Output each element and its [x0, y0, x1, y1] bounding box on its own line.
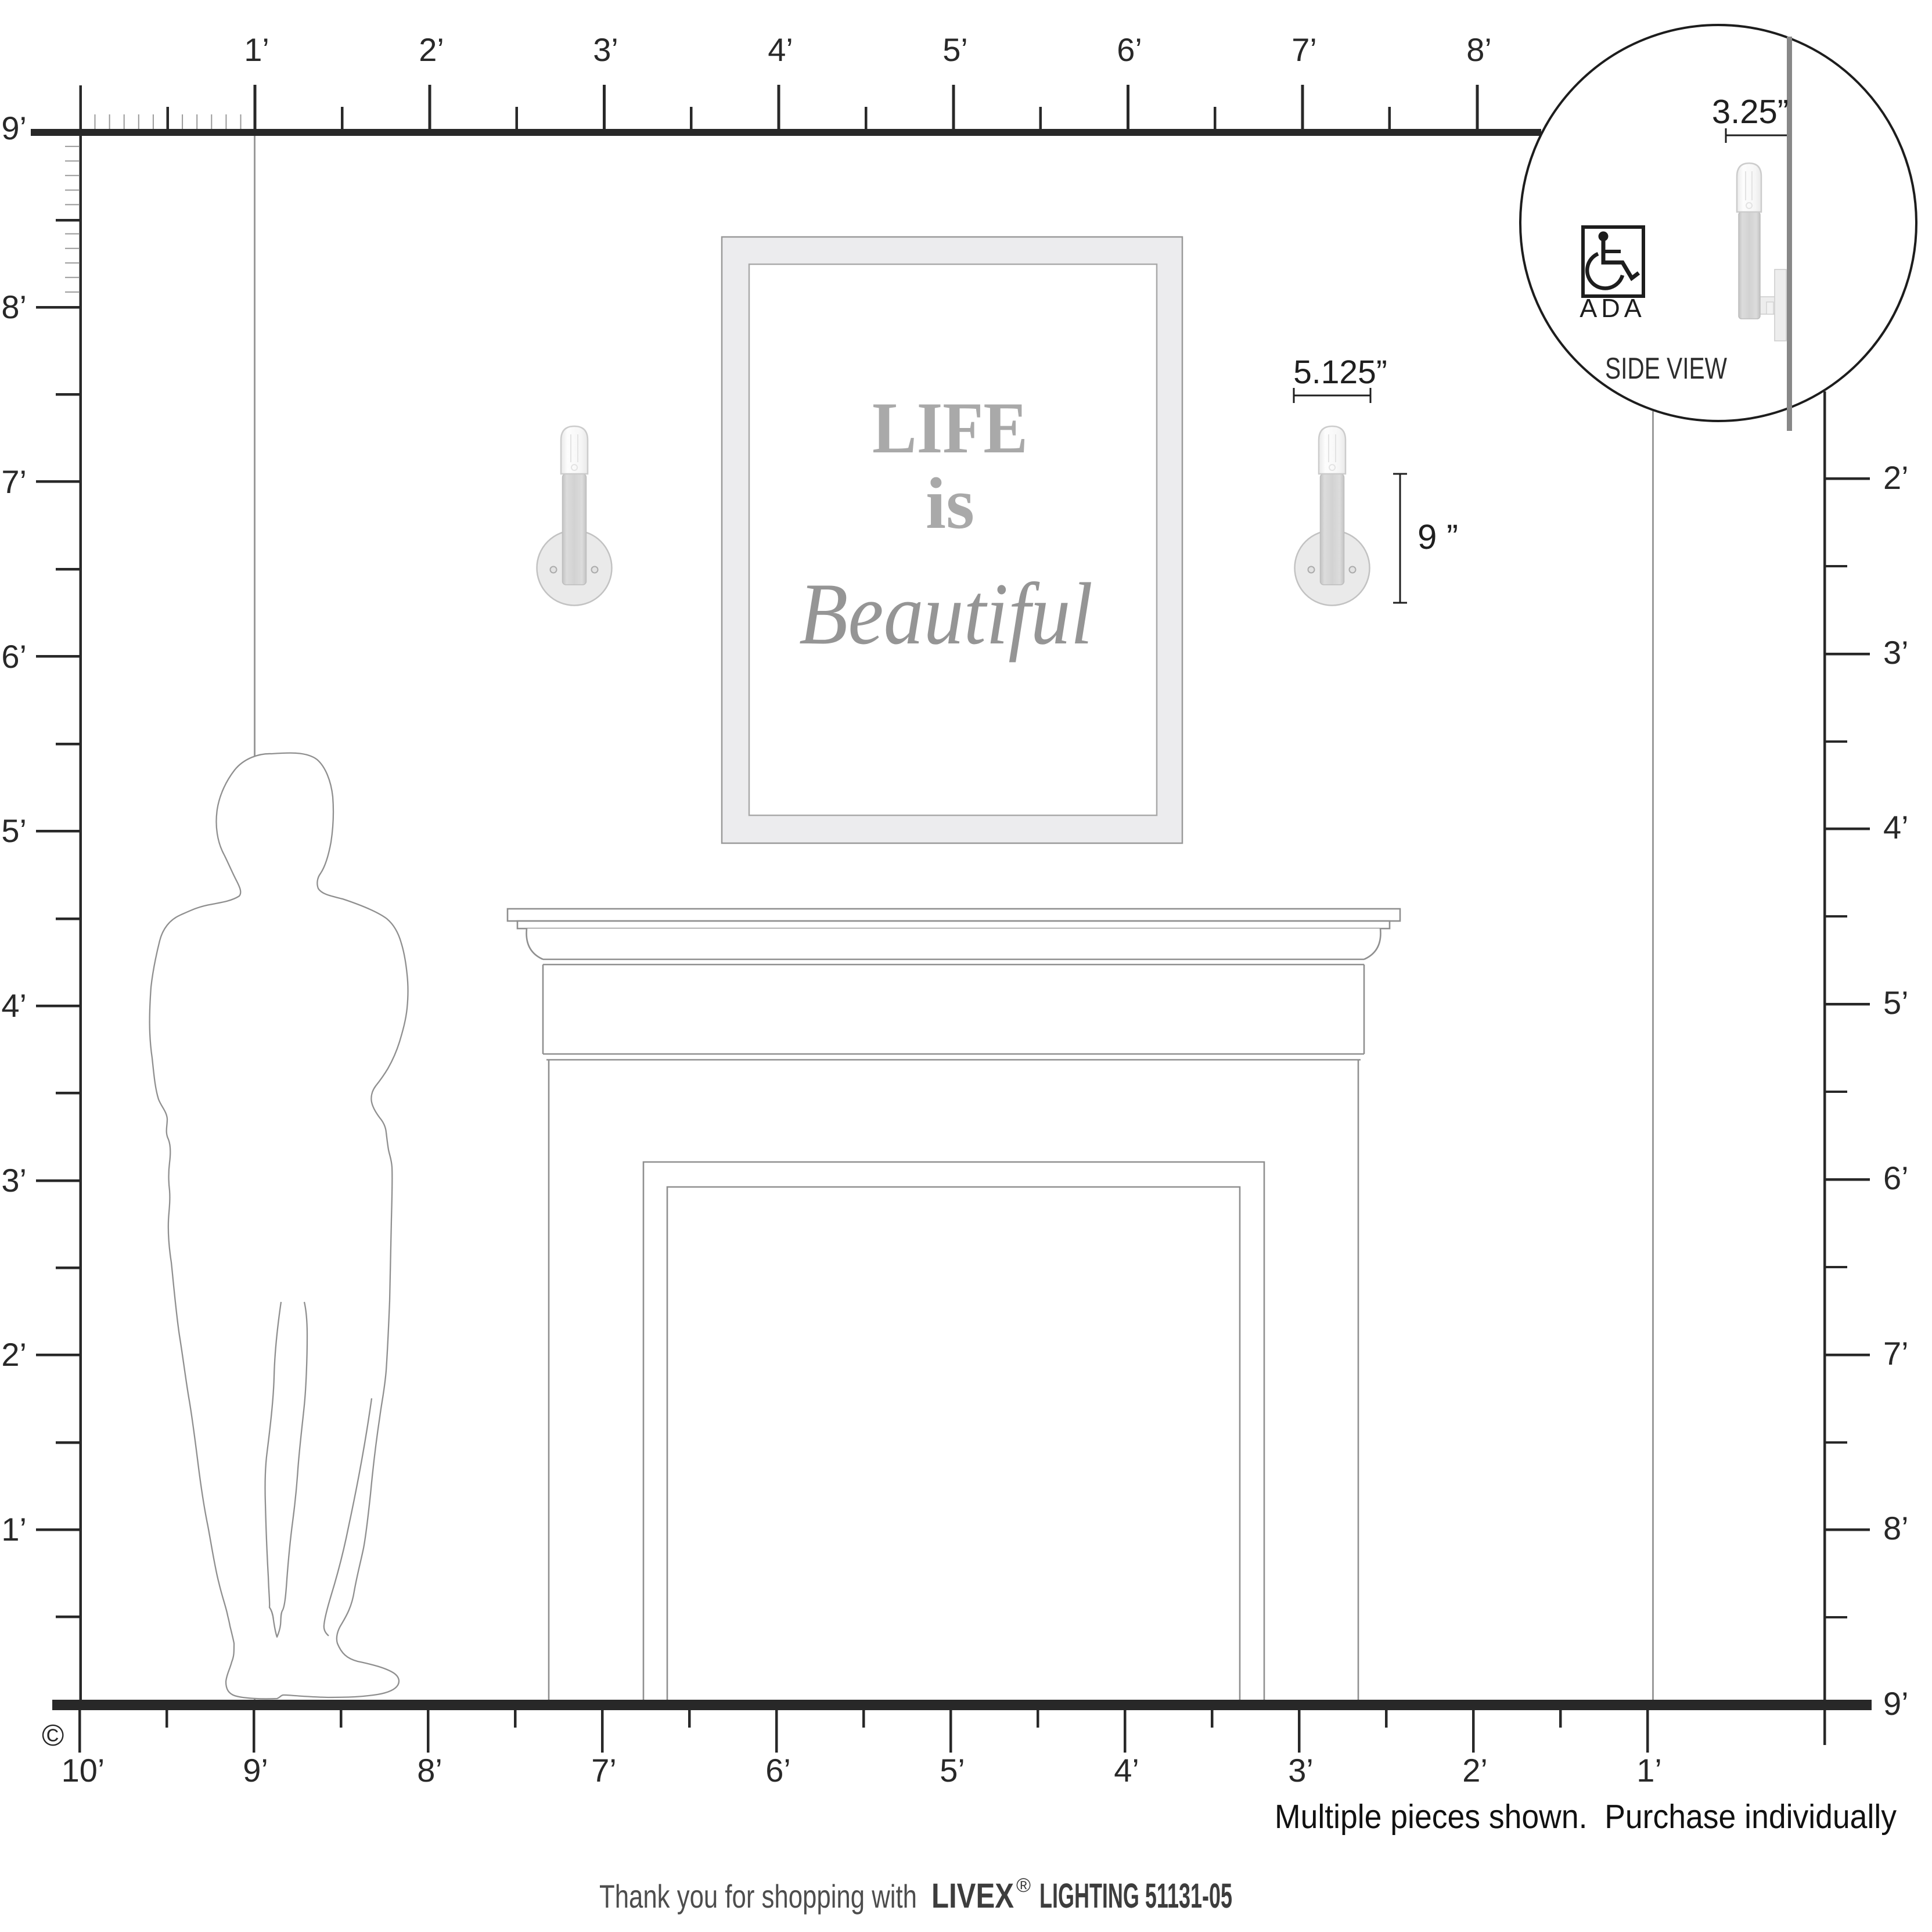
svg-text:is: is [926, 463, 974, 544]
svg-text:6’: 6’ [1117, 31, 1142, 68]
svg-text:8’: 8’ [417, 1752, 442, 1789]
svg-text:9’: 9’ [243, 1752, 268, 1789]
svg-text:LIVEX: LIVEX [931, 1876, 1014, 1915]
svg-text:LIGHTING 51131-05: LIGHTING 51131-05 [1039, 1876, 1232, 1915]
svg-text:5’: 5’ [1883, 984, 1909, 1021]
svg-text:4’: 4’ [1, 987, 27, 1024]
svg-text:3’: 3’ [1883, 634, 1909, 671]
svg-text:3’: 3’ [1288, 1752, 1314, 1789]
svg-text:3.25”: 3.25” [1712, 93, 1789, 131]
svg-text:1’: 1’ [1636, 1752, 1662, 1789]
svg-text:8’: 8’ [1, 289, 27, 325]
svg-text:6’: 6’ [1, 638, 27, 675]
svg-text:1’: 1’ [1, 1511, 27, 1548]
svg-text:4’: 4’ [768, 31, 793, 68]
svg-text:9’: 9’ [1883, 1685, 1909, 1722]
svg-text:LIFE: LIFE [872, 388, 1028, 469]
svg-text:5.125”: 5.125” [1293, 354, 1387, 391]
svg-text:6’: 6’ [1883, 1160, 1909, 1196]
svg-text:Beautiful: Beautiful [799, 565, 1093, 663]
svg-text:3’: 3’ [593, 31, 618, 68]
svg-text:5’: 5’ [942, 31, 968, 68]
svg-text:2’: 2’ [419, 31, 444, 68]
svg-text:5’: 5’ [940, 1752, 965, 1789]
svg-text:7’: 7’ [1883, 1335, 1909, 1372]
svg-text:2’: 2’ [1462, 1752, 1488, 1789]
svg-text:10’: 10’ [62, 1752, 105, 1789]
svg-text:4’: 4’ [1883, 809, 1909, 846]
svg-text:®: ® [1016, 1875, 1031, 1897]
svg-text:Multiple pieces shown. Purcha: Multiple pieces shown. Purchase individu… [1275, 1798, 1897, 1836]
svg-text:4’: 4’ [1114, 1752, 1139, 1789]
svg-text:7’: 7’ [591, 1752, 617, 1789]
svg-text:6’: 6’ [765, 1752, 791, 1789]
svg-text:7’: 7’ [1, 463, 27, 500]
svg-text:9’: 9’ [1, 110, 27, 146]
svg-text:Thank you for shopping with: Thank you for shopping with [599, 1878, 917, 1915]
svg-text:7’: 7’ [1291, 31, 1317, 68]
svg-text:8’: 8’ [1466, 31, 1492, 68]
svg-text:9 ”: 9 ” [1417, 517, 1458, 556]
svg-text:2’: 2’ [1883, 459, 1909, 496]
svg-text:©: © [42, 1719, 64, 1753]
svg-text:ADA: ADA [1580, 293, 1646, 323]
svg-text:8’: 8’ [1883, 1510, 1909, 1546]
svg-text:5’: 5’ [1, 812, 27, 849]
svg-text:3’: 3’ [1, 1162, 27, 1199]
svg-text:1’: 1’ [244, 31, 269, 68]
svg-text:2’: 2’ [1, 1336, 27, 1373]
svg-text:SIDE VIEW: SIDE VIEW [1605, 352, 1727, 386]
